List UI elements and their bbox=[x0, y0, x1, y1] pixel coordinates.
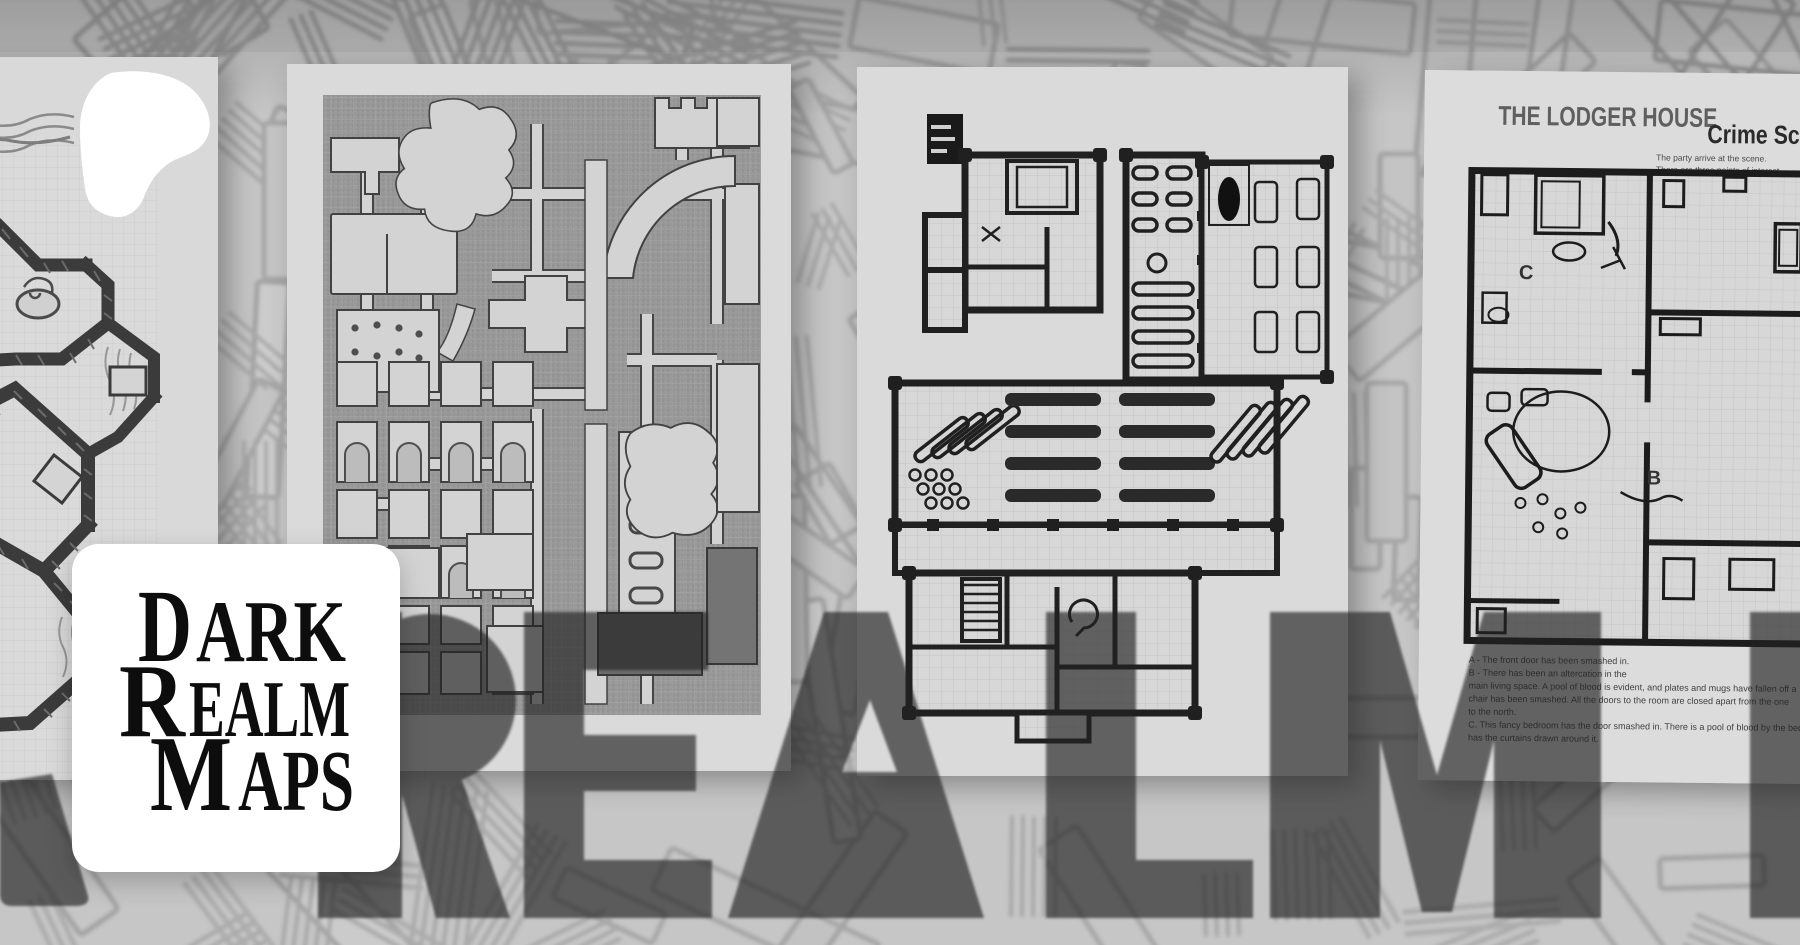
svg-text:M: M bbox=[150, 715, 232, 834]
svg-text:APS: APS bbox=[238, 732, 354, 829]
